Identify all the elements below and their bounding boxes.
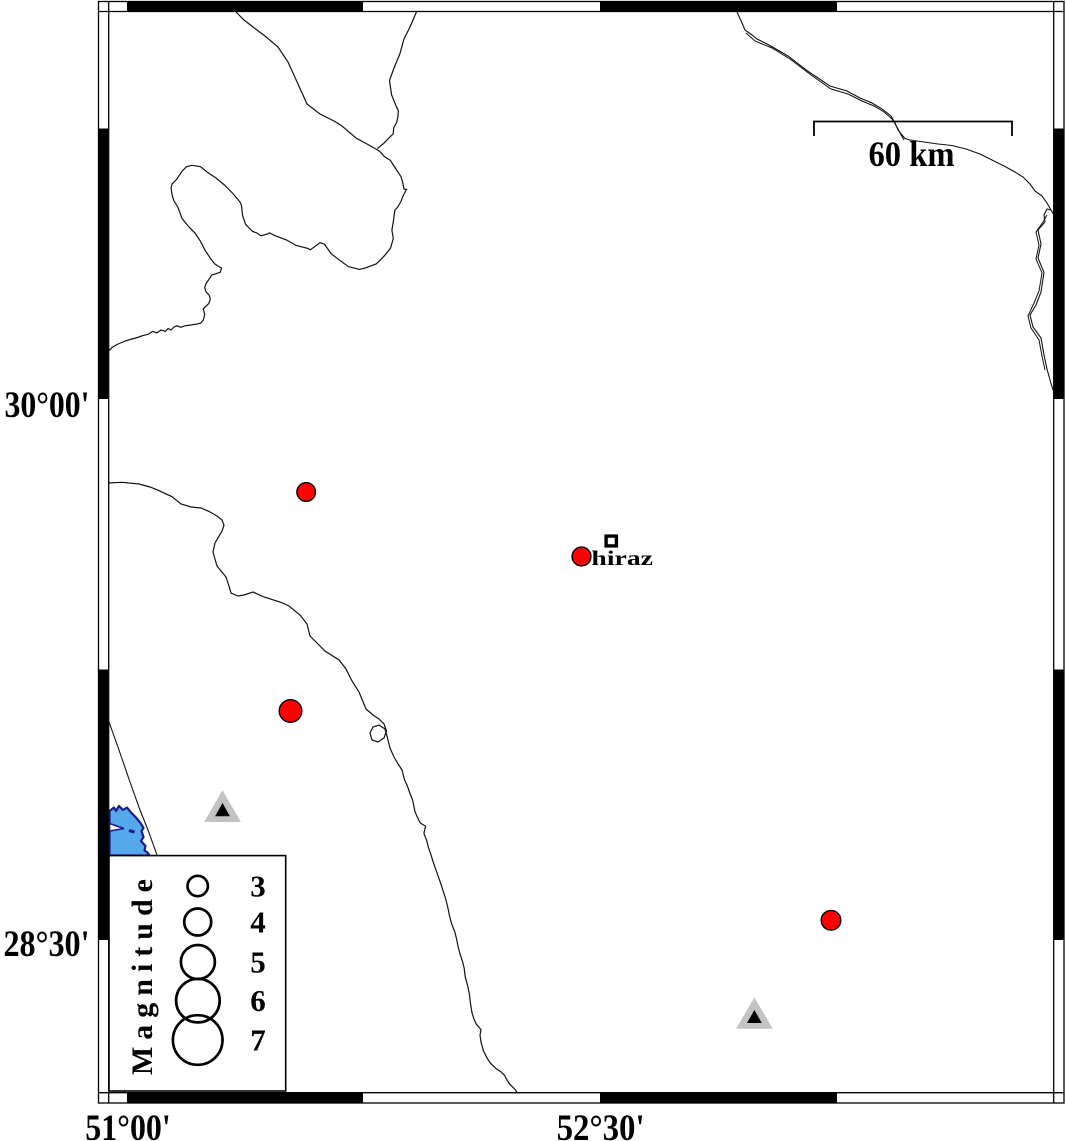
svg-text:60 km: 60 km [869,134,955,174]
svg-text:6: 6 [250,983,266,1018]
svg-text:28°30': 28°30' [4,924,90,965]
svg-text:30°00': 30°00' [5,385,90,426]
svg-text:7: 7 [250,1023,266,1058]
svg-text:4: 4 [250,905,266,940]
svg-text:51°00': 51°00' [85,1108,171,1141]
svg-text:5: 5 [250,945,266,980]
svg-text:52°30': 52°30' [557,1108,645,1141]
svg-text:3: 3 [250,869,266,904]
